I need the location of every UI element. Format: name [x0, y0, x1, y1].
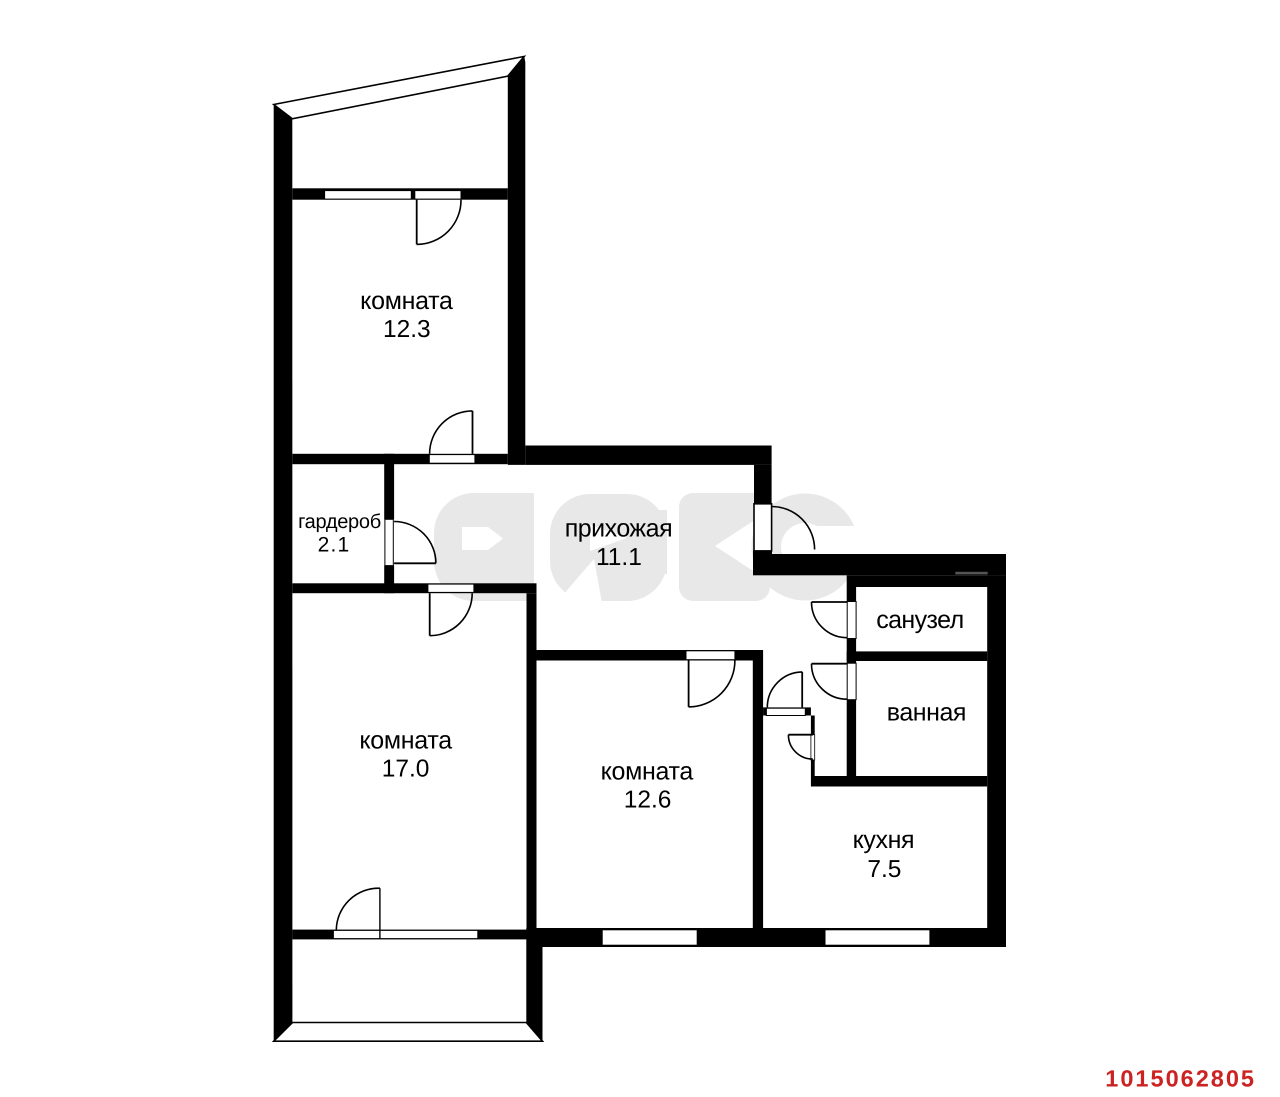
svg-text:ванная: ванная [887, 699, 966, 727]
svg-text:7.5: 7.5 [867, 856, 901, 883]
svg-text:комната: комната [359, 727, 452, 755]
svg-text:17.0: 17.0 [382, 756, 430, 783]
svg-text:прихожая: прихожая [565, 515, 672, 543]
svg-text:санузел: санузел [876, 606, 963, 634]
svg-text:комната: комната [601, 758, 694, 786]
svg-text:11.1: 11.1 [596, 544, 642, 571]
svg-text:12.3: 12.3 [383, 316, 431, 343]
svg-text:1015062805: 1015062805 [1105, 1066, 1256, 1092]
svg-text:гардероб: гардероб [298, 511, 381, 533]
svg-text:комната: комната [360, 287, 453, 315]
svg-text:кухня: кухня [853, 826, 915, 854]
svg-text:2.1: 2.1 [318, 533, 351, 556]
svg-text:12.6: 12.6 [624, 787, 672, 814]
